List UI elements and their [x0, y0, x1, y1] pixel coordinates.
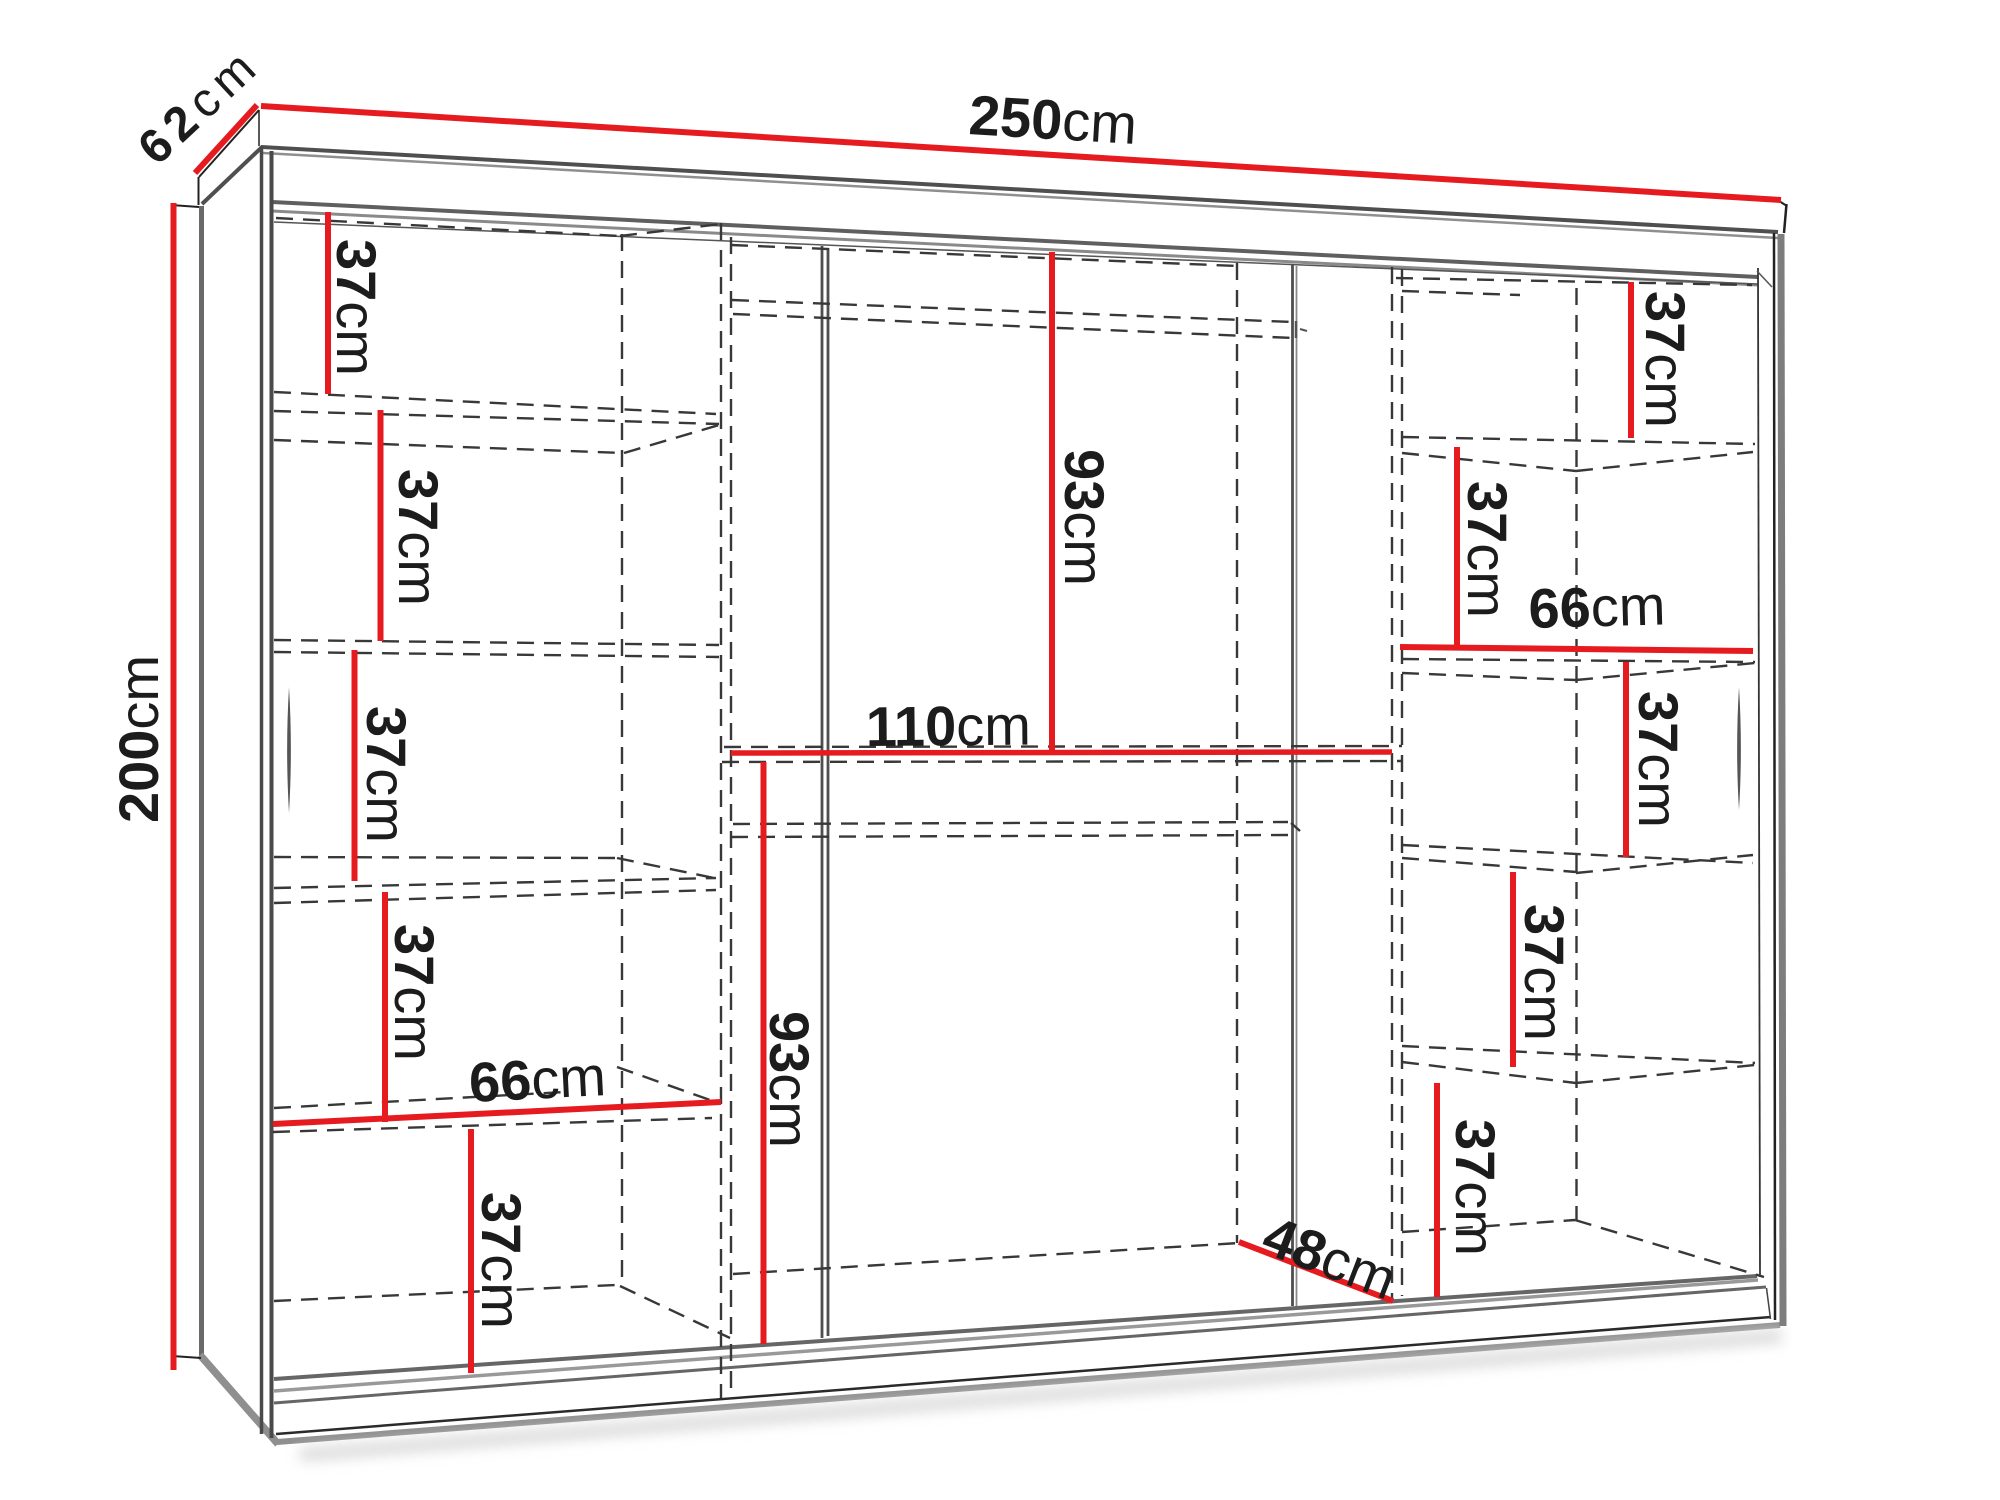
- svg-text:250cm: 250cm: [967, 83, 1139, 156]
- svg-text:37cm: 37cm: [355, 706, 418, 843]
- svg-text:37cm: 37cm: [1456, 481, 1519, 618]
- svg-text:37cm: 37cm: [1634, 291, 1697, 428]
- svg-text:93cm: 93cm: [1053, 449, 1116, 586]
- svg-text:110cm: 110cm: [866, 694, 1032, 758]
- svg-text:37cm: 37cm: [383, 924, 446, 1061]
- svg-text:66cm: 66cm: [467, 1044, 607, 1114]
- svg-text:37cm: 37cm: [1627, 691, 1690, 828]
- svg-text:37cm: 37cm: [1444, 1119, 1507, 1256]
- svg-text:37cm: 37cm: [387, 469, 450, 606]
- svg-text:200cm: 200cm: [107, 655, 170, 823]
- svg-text:37cm: 37cm: [325, 239, 388, 376]
- svg-text:37cm: 37cm: [1513, 904, 1576, 1041]
- svg-text:66cm: 66cm: [1528, 573, 1667, 640]
- svg-text:37cm: 37cm: [470, 1192, 533, 1329]
- svg-text:93cm: 93cm: [758, 1011, 821, 1148]
